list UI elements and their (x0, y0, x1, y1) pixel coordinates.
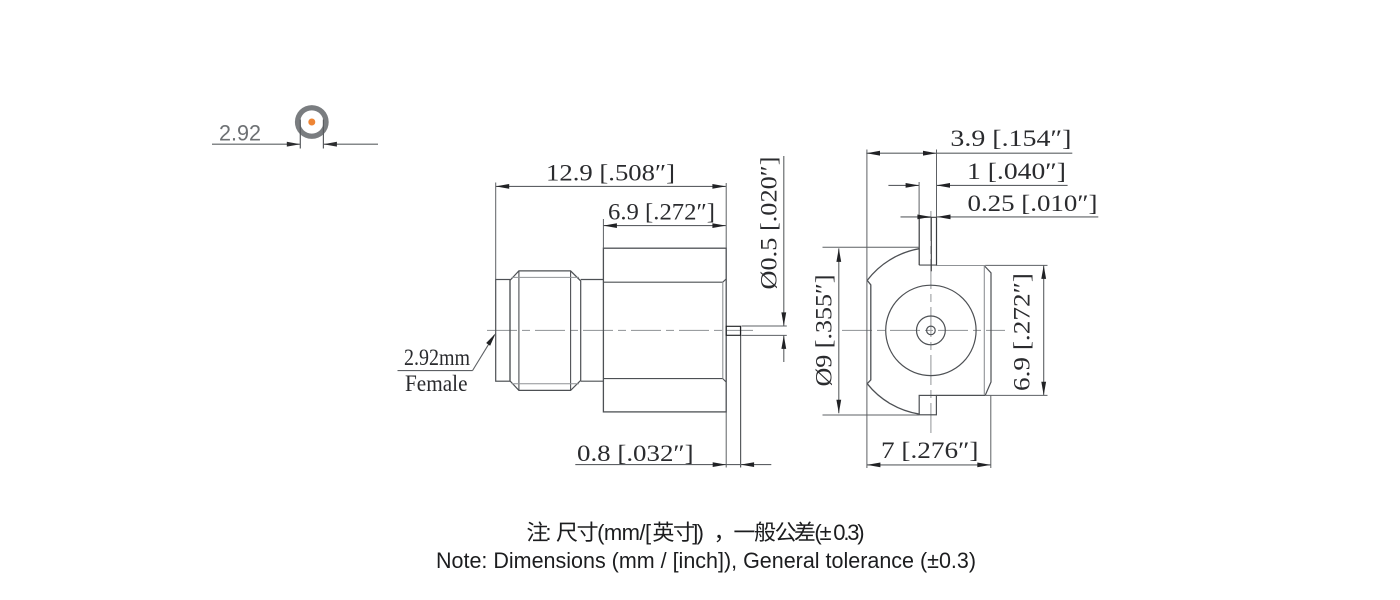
svg-text:]): ]) (692, 520, 704, 545)
svg-text:(± 0.3): (± 0.3) (814, 520, 864, 545)
svg-text:(mm/[: (mm/[ (597, 520, 651, 545)
svg-text:Ø9 [.355″]: Ø9 [.355″] (812, 275, 837, 387)
svg-text:2.92: 2.92 (219, 121, 261, 146)
svg-text:6.9 [.272″]: 6.9 [.272″] (1010, 273, 1035, 391)
svg-text:1 [.040″]: 1 [.040″] (967, 159, 1066, 184)
svg-text:Note: Dimensions (mm / [inch]): Note: Dimensions (mm / [inch]), General … (436, 548, 976, 573)
svg-text:Female: Female (405, 371, 468, 396)
svg-text:7 [.276″]: 7 [.276″] (881, 438, 979, 463)
svg-text:2.92mm: 2.92mm (404, 345, 470, 370)
svg-text:0.8 [.032″]: 0.8 [.032″] (577, 441, 694, 466)
svg-text:0.25 [.010″]: 0.25 [.010″] (968, 191, 1098, 216)
svg-text:3.9 [.154″]: 3.9 [.154″] (950, 126, 1071, 151)
svg-text:Ø0.5 [.020″]: Ø0.5 [.020″] (757, 157, 782, 290)
svg-text::: : (545, 520, 551, 545)
svg-text:6.9 [.272″]: 6.9 [.272″] (608, 200, 715, 225)
svg-text:12.9 [.508″]: 12.9 [.508″] (546, 161, 675, 186)
